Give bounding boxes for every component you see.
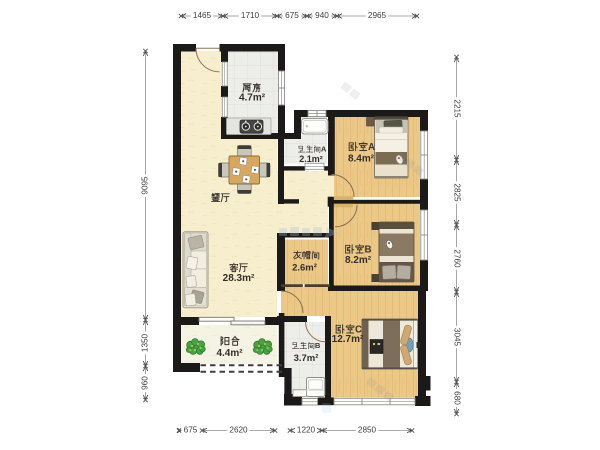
svg-text:675: 675	[184, 426, 198, 435]
svg-text:2760: 2760	[452, 249, 461, 268]
svg-text:675: 675	[285, 11, 299, 20]
svg-text:B: B	[364, 245, 371, 256]
svg-text:960: 960	[141, 376, 150, 390]
svg-text:8.4m²: 8.4m²	[348, 154, 375, 165]
svg-text:2850: 2850	[358, 426, 377, 435]
svg-text:28.3m²: 28.3m²	[223, 273, 255, 284]
svg-text:2.1m²: 2.1m²	[299, 154, 323, 164]
svg-text:4.7m²: 4.7m²	[239, 93, 266, 104]
svg-text:3045: 3045	[452, 328, 461, 347]
svg-text:B: B	[315, 341, 321, 350]
svg-text:2.6m²: 2.6m²	[292, 263, 317, 274]
svg-text:680: 680	[452, 391, 461, 405]
svg-text:2215: 2215	[452, 99, 461, 118]
svg-text:9095: 9095	[141, 176, 150, 195]
svg-text:2620: 2620	[229, 426, 248, 435]
svg-text:1710: 1710	[241, 11, 260, 20]
svg-text:1220: 1220	[297, 426, 316, 435]
svg-text:8.2m²: 8.2m²	[345, 255, 372, 266]
svg-text:A: A	[321, 145, 327, 154]
svg-text:12.7m²: 12.7m²	[332, 334, 364, 345]
svg-text:A: A	[368, 142, 375, 153]
svg-text:1465: 1465	[193, 11, 212, 20]
svg-text:3.7m²: 3.7m²	[294, 353, 319, 364]
svg-text:2825: 2825	[452, 183, 461, 202]
svg-text:1350: 1350	[141, 333, 150, 352]
svg-text:4.4m²: 4.4m²	[216, 348, 243, 359]
svg-text:940: 940	[315, 11, 329, 20]
svg-text:2965: 2965	[368, 11, 387, 20]
